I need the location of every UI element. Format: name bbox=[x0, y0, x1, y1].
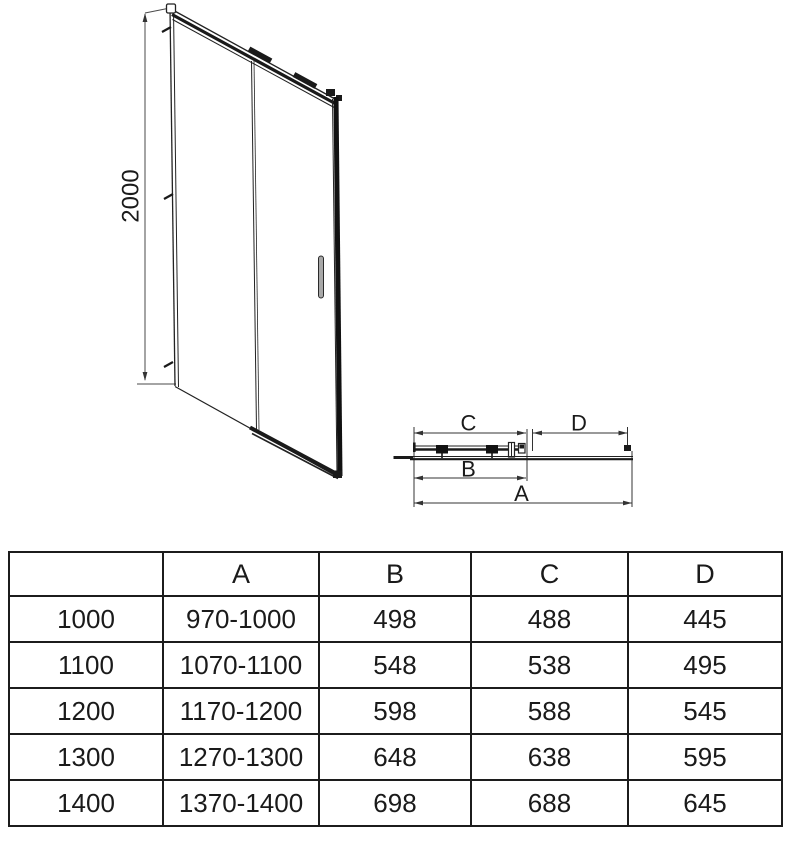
height-dimension-label: 2000 bbox=[118, 169, 145, 222]
wall-bracket-tick bbox=[164, 194, 173, 199]
a-cell: 970-1000 bbox=[163, 596, 319, 642]
table-row: 1300 1270-1300 648 638 595 bbox=[9, 734, 782, 780]
dim-a-label: A bbox=[514, 481, 529, 506]
table-row: 1000 970-1000 498 488 445 bbox=[9, 596, 782, 642]
dim-d-label: D bbox=[571, 411, 587, 436]
table-row: 1200 1170-1200 598 588 545 bbox=[9, 688, 782, 734]
d-cell: 645 bbox=[628, 780, 782, 826]
arrowhead-icon bbox=[533, 431, 542, 436]
header-b: B bbox=[319, 552, 471, 596]
header-a: A bbox=[163, 552, 319, 596]
d-cell: 545 bbox=[628, 688, 782, 734]
panel-end-block bbox=[624, 445, 631, 451]
sliding-panel-end-tick bbox=[413, 443, 416, 453]
size-cell: 1000 bbox=[9, 596, 163, 642]
bottom-right-foot bbox=[333, 471, 342, 479]
arrowhead-icon bbox=[619, 431, 628, 436]
size-cell: 1300 bbox=[9, 734, 163, 780]
d-cell: 495 bbox=[628, 642, 782, 688]
header-c: C bbox=[471, 552, 628, 596]
table-row: 1100 1070-1100 548 538 495 bbox=[9, 642, 782, 688]
arrowhead-icon bbox=[623, 501, 632, 506]
arrowhead-icon bbox=[143, 372, 148, 381]
size-cell: 1100 bbox=[9, 642, 163, 688]
bottom-rail-band bbox=[250, 428, 336, 474]
size-cell: 1200 bbox=[9, 688, 163, 734]
door-handle bbox=[319, 256, 324, 298]
a-cell: 1270-1300 bbox=[163, 734, 319, 780]
c-cell: 588 bbox=[471, 688, 628, 734]
a-cell: 1370-1400 bbox=[163, 780, 319, 826]
table-header-row: A B C D bbox=[9, 552, 782, 596]
arrowhead-icon bbox=[414, 476, 423, 481]
b-cell: 598 bbox=[319, 688, 471, 734]
b-cell: 498 bbox=[319, 596, 471, 642]
plan-view: C D B bbox=[394, 411, 634, 508]
arrowhead-icon bbox=[414, 501, 423, 506]
c-cell: 538 bbox=[471, 642, 628, 688]
table-row: 1400 1370-1400 698 688 645 bbox=[9, 780, 782, 826]
a-cell: 1170-1200 bbox=[163, 688, 319, 734]
b-cell: 698 bbox=[319, 780, 471, 826]
d-cell: 445 bbox=[628, 596, 782, 642]
rail-end-cap bbox=[326, 89, 335, 96]
c-cell: 638 bbox=[471, 734, 628, 780]
dim-b-label: B bbox=[461, 457, 476, 482]
panel-division-line bbox=[252, 61, 257, 430]
dimensions-table: A B C D 1000 970-1000 498 488 445 1100 1… bbox=[8, 551, 783, 827]
c-cell: 688 bbox=[471, 780, 628, 826]
d-cell: 595 bbox=[628, 734, 782, 780]
arrowhead-icon bbox=[414, 431, 423, 436]
roller-block bbox=[436, 445, 448, 454]
dim-c-label: C bbox=[461, 411, 477, 436]
top-left-corner-cap bbox=[167, 4, 176, 13]
top-rail-band bbox=[172, 15, 336, 105]
a-cell: 1070-1100 bbox=[163, 642, 319, 688]
header-d: D bbox=[628, 552, 782, 596]
b-cell: 548 bbox=[319, 642, 471, 688]
c-cell: 488 bbox=[471, 596, 628, 642]
panel-division-line-inner bbox=[254, 61, 259, 430]
wall-bracket-tick bbox=[164, 362, 173, 367]
shower-door-technical-drawing: 2000 C bbox=[0, 0, 789, 545]
roller-block bbox=[486, 445, 498, 454]
arrowhead-icon bbox=[517, 431, 526, 436]
size-cell: 1400 bbox=[9, 780, 163, 826]
arrowhead-icon bbox=[143, 13, 148, 22]
b-cell: 648 bbox=[319, 734, 471, 780]
header-size bbox=[9, 552, 163, 596]
arrowhead-icon bbox=[517, 476, 526, 481]
end-profile-cap bbox=[520, 445, 525, 449]
front-view: 2000 bbox=[118, 4, 343, 479]
bottom-rail-lower bbox=[252, 434, 338, 479]
